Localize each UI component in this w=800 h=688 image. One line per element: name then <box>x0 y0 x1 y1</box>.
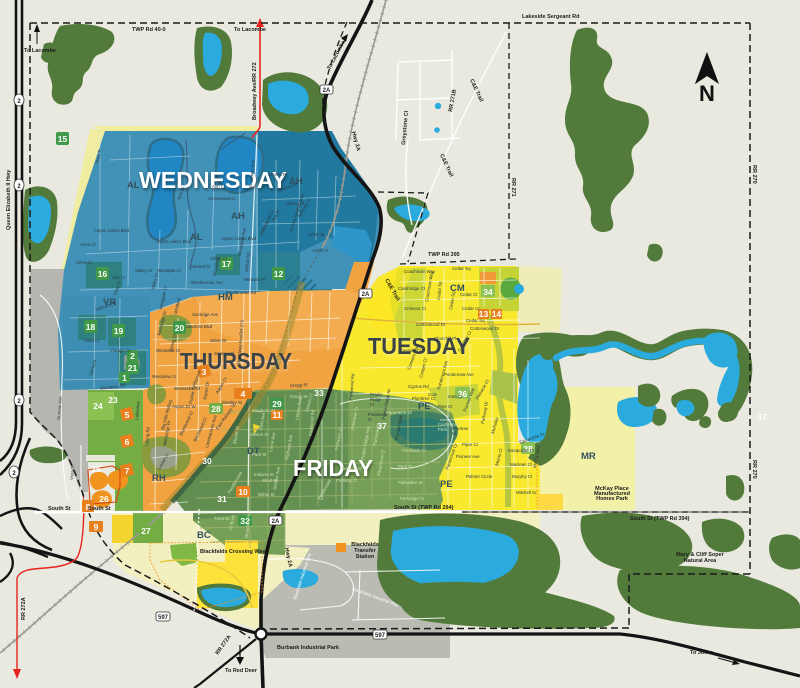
svg-text:2A: 2A <box>362 292 370 298</box>
svg-text:South St (TWP Rd 394): South St (TWP Rd 394) <box>630 516 690 522</box>
svg-text:Piper Cl: Piper Cl <box>462 442 478 447</box>
svg-text:TWP Rd 40-0: TWP Rd 40-0 <box>132 27 166 33</box>
svg-text:Cedar Sq: Cedar Sq <box>466 318 485 323</box>
svg-text:PE: PE <box>440 479 453 490</box>
svg-text:Cedar Cl: Cedar Cl <box>460 292 477 297</box>
svg-text:Vintage Cr: Vintage Cr <box>110 348 131 353</box>
svg-text:12: 12 <box>274 269 284 279</box>
svg-text:18: 18 <box>86 322 96 332</box>
svg-text:MR: MR <box>581 451 596 462</box>
svg-text:Homes Park: Homes Park <box>596 496 629 502</box>
svg-text:Plumtree Cr: Plumtree Cr <box>412 396 436 401</box>
svg-text:3: 3 <box>202 367 207 377</box>
svg-text:Cedar Cr: Cedar Cr <box>462 306 480 311</box>
svg-text:31: 31 <box>217 494 227 504</box>
svg-text:34: 34 <box>483 287 493 297</box>
svg-text:15: 15 <box>58 134 68 144</box>
svg-text:Sunridge Ave: Sunridge Ave <box>192 312 219 317</box>
svg-text:Indiana St: Indiana St <box>254 472 275 477</box>
svg-text:Westbrooke Ave: Westbrooke Ave <box>191 280 223 285</box>
svg-text:Station: Station <box>356 554 375 560</box>
svg-text:AH: AH <box>231 211 245 222</box>
svg-text:South St: South St <box>48 506 71 512</box>
svg-text:Cyprus Rd: Cyprus Rd <box>408 384 429 389</box>
svg-text:PE: PE <box>418 401 431 412</box>
svg-text:Aztec St: Aztec St <box>308 232 325 237</box>
svg-text:30: 30 <box>202 456 212 466</box>
svg-text:Aztec Cr: Aztec Cr <box>312 248 329 253</box>
svg-text:25: 25 <box>91 464 101 474</box>
svg-text:Churchill Pl: Churchill Pl <box>434 336 456 341</box>
svg-text:N: N <box>699 81 715 106</box>
svg-text:Ponderosa Ave: Ponderosa Ave <box>444 372 474 377</box>
svg-text:Gregg St: Gregg St <box>290 394 308 399</box>
svg-text:28: 28 <box>211 404 221 414</box>
svg-text:Pinnacle Cl: Pinnacle Cl <box>340 466 362 471</box>
svg-text:10: 10 <box>238 487 248 497</box>
svg-text:To Joffre: To Joffre <box>690 650 713 656</box>
svg-text:RR 270: RR 270 <box>751 165 757 184</box>
svg-text:Stanford Blvd: Stanford Blvd <box>186 324 213 329</box>
svg-text:19: 19 <box>114 326 124 336</box>
svg-text:Queen Elizabeth II Hwy: Queen Elizabeth II Hwy <box>6 169 12 230</box>
svg-text:RH: RH <box>152 473 166 484</box>
svg-text:Crimson Cl: Crimson Cl <box>404 306 426 311</box>
svg-text:Arrowwood Cl: Arrowwood Cl <box>208 196 235 201</box>
svg-text:RR 271: RR 271 <box>510 178 516 197</box>
svg-text:Cl: Cl <box>452 431 456 436</box>
svg-text:Pioneer Ave: Pioneer Ave <box>456 454 480 459</box>
svg-text:9: 9 <box>94 522 99 532</box>
svg-text:5: 5 <box>125 410 130 420</box>
svg-text:33: 33 <box>314 388 324 398</box>
svg-text:Silver Dr: Silver Dr <box>210 338 227 343</box>
svg-text:Cedar Sq: Cedar Sq <box>452 266 471 271</box>
svg-text:Cl: Cl <box>368 417 372 422</box>
svg-text:Vista Cl: Vista Cl <box>84 338 99 343</box>
svg-text:597: 597 <box>158 615 169 621</box>
svg-text:27: 27 <box>141 526 151 536</box>
svg-text:AL: AL <box>127 180 140 191</box>
svg-text:20: 20 <box>175 323 185 333</box>
svg-text:Wilson St: Wilson St <box>250 432 269 437</box>
svg-text:Trout St: Trout St <box>214 516 230 521</box>
svg-text:Natural Area: Natural Area <box>684 558 717 564</box>
svg-text:26: 26 <box>99 494 109 504</box>
svg-text:21: 21 <box>128 363 138 373</box>
svg-text:37: 37 <box>757 412 767 422</box>
svg-text:Arlen Cl: Arlen Cl <box>76 260 92 265</box>
svg-text:Eastpointe Dr: Eastpointe Dr <box>508 448 535 453</box>
svg-text:Sunrise Cl: Sunrise Cl <box>214 351 234 356</box>
svg-text:South St (TWP Rd 294): South St (TWP Rd 294) <box>394 505 454 511</box>
svg-text:Ava Cr: Ava Cr <box>112 275 126 280</box>
svg-text:Ash Cl: Ash Cl <box>212 184 225 189</box>
svg-text:Murphy Cl: Murphy Cl <box>512 474 532 479</box>
svg-text:TWP Rd 395: TWP Rd 395 <box>428 252 460 258</box>
svg-text:Palmer Circle: Palmer Circle <box>466 474 493 479</box>
svg-text:To Lacombe: To Lacombe <box>24 48 56 54</box>
svg-text:Westgate Cr: Westgate Cr <box>157 268 182 273</box>
svg-text:RR 272A: RR 272A <box>21 597 27 620</box>
svg-text:Aspen Lakes Blvd: Aspen Lakes Blvd <box>94 228 130 233</box>
svg-text:AL: AL <box>190 232 203 243</box>
svg-text:Panorama Dr: Panorama Dr <box>386 410 413 415</box>
svg-text:Park St: Park St <box>252 452 267 457</box>
svg-text:1: 1 <box>122 373 127 383</box>
svg-text:Cl: Cl <box>370 402 374 407</box>
svg-text:Almond Cr: Almond Cr <box>190 264 211 269</box>
svg-text:Portway Cl: Portway Cl <box>336 478 357 483</box>
svg-text:Park St: Park St <box>398 464 413 469</box>
svg-text:Waghorn St: Waghorn St <box>252 408 276 413</box>
svg-text:To Lacombe: To Lacombe <box>234 27 266 33</box>
svg-text:Winto St: Winto St <box>258 492 275 497</box>
svg-text:Mitchell Cr: Mitchell Cr <box>516 490 537 495</box>
svg-text:Anna Cl: Anna Cl <box>80 242 96 247</box>
svg-text:Maclean Cl: Maclean Cl <box>510 462 532 467</box>
svg-text:597: 597 <box>375 633 386 639</box>
svg-text:man Cr: man Cr <box>448 394 463 399</box>
svg-text:Aspen Lakes Blvd: Aspen Lakes Blvd <box>156 239 192 244</box>
svg-text:2: 2 <box>130 351 135 361</box>
svg-text:2A: 2A <box>272 519 280 525</box>
svg-text:WEDNESDAY: WEDNESDAY <box>139 167 287 193</box>
svg-text:South St: South St <box>88 506 111 512</box>
svg-text:Blackfalds Crossing Way: Blackfalds Crossing Way <box>200 549 266 555</box>
svg-text:Winston Pl: Winston Pl <box>244 277 265 282</box>
svg-text:Cambridge Cl: Cambridge Cl <box>398 286 425 291</box>
svg-text:Westview Cr: Westview Cr <box>156 348 181 353</box>
svg-text:24: 24 <box>93 401 103 411</box>
svg-text:2A: 2A <box>323 88 331 94</box>
svg-text:Pine Cr: Pine Cr <box>438 404 453 409</box>
svg-text:Broadway Ave/RR 272: Broadway Ave/RR 272 <box>252 62 258 120</box>
svg-text:Cottonwood Dr: Cottonwood Dr <box>416 322 446 327</box>
svg-text:6: 6 <box>125 437 130 447</box>
svg-text:Weelbrooke Rd: Weelbrooke Rd <box>226 290 257 295</box>
svg-text:BC: BC <box>197 530 211 541</box>
svg-text:Womacks Rd: Womacks Rd <box>174 386 201 391</box>
svg-text:Athens Pl: Athens Pl <box>268 172 287 177</box>
svg-text:23: 23 <box>108 395 118 405</box>
svg-text:16: 16 <box>98 269 108 279</box>
svg-text:Park: Park <box>438 427 448 432</box>
svg-text:RR 270: RR 270 <box>751 460 757 479</box>
svg-text:14: 14 <box>492 309 502 319</box>
svg-text:Gregg St: Gregg St <box>290 382 309 388</box>
svg-text:South St: South St <box>198 510 216 515</box>
svg-text:Burbank Industrial Park: Burbank Industrial Park <box>277 645 340 651</box>
svg-text:Westview Cr: Westview Cr <box>152 374 177 379</box>
svg-text:Valley Cr: Valley Cr <box>135 268 153 273</box>
svg-text:Pondside Cr: Pondside Cr <box>402 448 427 453</box>
svg-text:Lakeside Sergeant Rd: Lakeside Sergeant Rd <box>522 14 579 20</box>
svg-text:Cottonwood Dr: Cottonwood Dr <box>470 326 500 331</box>
svg-text:4: 4 <box>241 389 246 399</box>
svg-text:Parkridge Cr: Parkridge Cr <box>400 496 425 501</box>
svg-text:7: 7 <box>125 466 130 476</box>
svg-text:To Red Deer: To Red Deer <box>225 668 258 674</box>
svg-text:Palisades St: Palisades St <box>398 480 423 485</box>
